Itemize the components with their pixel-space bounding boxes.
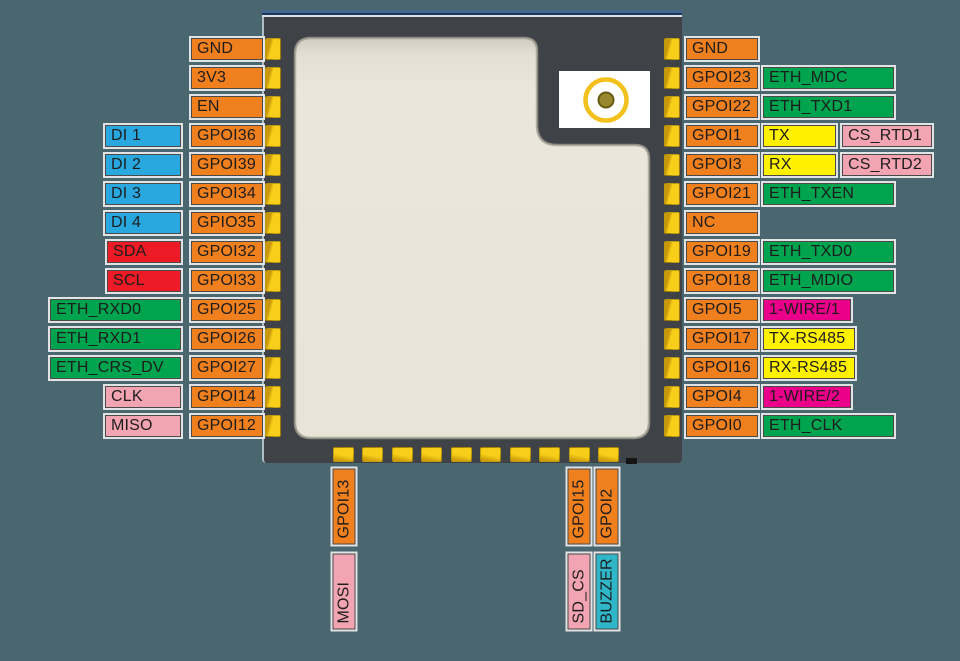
signal-sd-cs: SD_CS: [567, 553, 590, 629]
solder-pad: [664, 328, 680, 350]
solder-pad: [451, 447, 472, 462]
fiducial-mark: [626, 458, 637, 464]
pin-gpoi21: GPOI21: [686, 183, 758, 205]
solder-pad: [664, 38, 680, 60]
solder-pad: [664, 357, 680, 379]
solder-pad: [664, 67, 680, 89]
signal-eth-txd0: ETH_TXD0: [763, 241, 894, 263]
signal-di-3: DI 3: [105, 183, 181, 205]
pin-gpoi36: GPOI36: [191, 125, 263, 147]
pin-gpoi22: GPOI22: [686, 96, 758, 118]
solder-pad: [664, 154, 680, 176]
signal-eth-mdio: ETH_MDIO: [763, 270, 894, 292]
signal-eth-rxd1: ETH_RXD1: [50, 328, 181, 350]
signal-eth-crs-dv: ETH_CRS_DV: [50, 357, 181, 379]
pin-gpoi17: GPOI17: [686, 328, 758, 350]
solder-pad: [265, 415, 281, 437]
solder-pad: [265, 357, 281, 379]
solder-pad: [265, 67, 281, 89]
pin-en: EN: [191, 96, 263, 118]
pin-gpoi25: GPOI25: [191, 299, 263, 321]
signal-cs-rtd1: CS_RTD1: [842, 125, 932, 147]
pin-gnd: GND: [191, 38, 263, 60]
solder-pad: [265, 212, 281, 234]
pin-gpoi16: GPOI16: [686, 357, 758, 379]
pin-3v3: 3V3: [191, 67, 263, 89]
pin-gpoi4: GPOI4: [686, 386, 758, 408]
pin-gpoi34: GPOI34: [191, 183, 263, 205]
solder-pad: [265, 125, 281, 147]
pin-gpoi0: GPOI0: [686, 415, 758, 437]
solder-pad: [265, 154, 281, 176]
pin-gpoi27: GPOI27: [191, 357, 263, 379]
solder-pad: [362, 447, 383, 462]
solder-pad: [333, 447, 354, 462]
signal-eth-txd1: ETH_TXD1: [763, 96, 894, 118]
signal-mosi: MOSI: [332, 553, 355, 629]
solder-pad: [664, 270, 680, 292]
solder-pad: [539, 447, 560, 462]
signal-rx: RX: [763, 154, 836, 176]
signal-eth-mdc: ETH_MDC: [763, 67, 894, 89]
solder-pad: [664, 299, 680, 321]
pin-gpio35: GPIO35: [191, 212, 263, 234]
signal-eth-rxd0: ETH_RXD0: [50, 299, 181, 321]
pin-gpoi39: GPOI39: [191, 154, 263, 176]
signal-eth-clk: ETH_CLK: [763, 415, 894, 437]
signal-buzzer: BUZZER: [595, 553, 618, 629]
signal-1-wire-2: 1-WIRE/2: [763, 386, 851, 408]
pin-gpoi5: GPOI5: [686, 299, 758, 321]
signal-clk: CLK: [105, 386, 181, 408]
solder-pad: [664, 386, 680, 408]
solder-pad: [265, 270, 281, 292]
solder-pad: [569, 447, 590, 462]
solder-pad: [265, 183, 281, 205]
pin-gpoi23: GPOI23: [686, 67, 758, 89]
signal-cs-rtd2: CS_RTD2: [842, 154, 932, 176]
pin-gpoi12: GPOI12: [191, 415, 263, 437]
signal-tx-rs485: TX-RS485: [763, 328, 855, 350]
pin-gpoi33: GPOI33: [191, 270, 263, 292]
solder-pad: [421, 447, 442, 462]
signal-scl: SCL: [107, 270, 181, 292]
pin-gpoi2: GPOI2: [595, 468, 618, 544]
pin-gpoi3: GPOI3: [686, 154, 758, 176]
pin-nc: NC: [686, 212, 758, 234]
solder-pad: [664, 125, 680, 147]
solder-pad: [265, 299, 281, 321]
solder-pad: [265, 328, 281, 350]
pin-gpoi32: GPOI32: [191, 241, 263, 263]
pin-gpoi15: GPOI15: [567, 468, 590, 544]
signal-di-2: DI 2: [105, 154, 181, 176]
signal-miso: MISO: [105, 415, 181, 437]
solder-pad: [265, 241, 281, 263]
solder-pad: [664, 415, 680, 437]
solder-pad: [265, 38, 281, 60]
pin-gpoi19: GPOI19: [686, 241, 758, 263]
solder-pad: [664, 212, 680, 234]
solder-pad: [392, 447, 413, 462]
solder-pad: [480, 447, 501, 462]
signal-1-wire-1: 1-WIRE/1: [763, 299, 851, 321]
solder-pad: [664, 241, 680, 263]
module-shield: [262, 17, 682, 463]
solder-pad: [265, 386, 281, 408]
pinout-diagram: GND3V3ENGPOI36DI 1GPOI39DI 2GPOI34DI 3GP…: [0, 0, 960, 661]
pin-gpoi26: GPOI26: [191, 328, 263, 350]
solder-pad: [664, 183, 680, 205]
pin-gpoi14: GPOI14: [191, 386, 263, 408]
signal-sda: SDA: [107, 241, 181, 263]
pin-gpoi13: GPOI13: [332, 468, 355, 544]
solder-pad: [265, 96, 281, 118]
signal-di-1: DI 1: [105, 125, 181, 147]
pin-gnd: GND: [686, 38, 758, 60]
solder-pad: [598, 447, 619, 462]
signal-eth-txen: ETH_TXEN: [763, 183, 894, 205]
solder-pad: [510, 447, 531, 462]
signal-rx-rs485: RX-RS485: [763, 357, 855, 379]
signal-tx: TX: [763, 125, 836, 147]
signal-di-4: DI 4: [105, 212, 181, 234]
pin-gpoi18: GPOI18: [686, 270, 758, 292]
solder-pad: [664, 96, 680, 118]
antenna-icon: [559, 71, 650, 128]
pin-gpoi1: GPOI1: [686, 125, 758, 147]
